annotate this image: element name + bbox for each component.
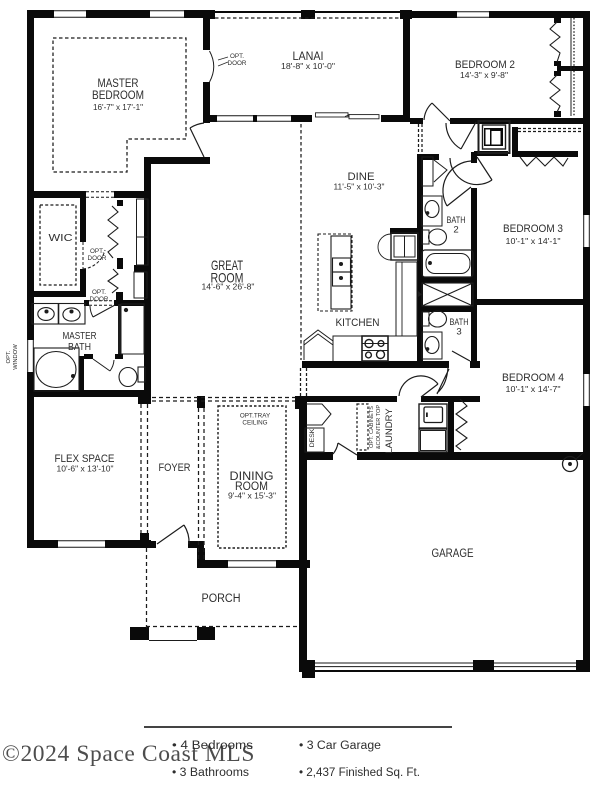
svg-text:BEDROOM 3: BEDROOM 3 (503, 223, 563, 235)
svg-text:DOOR: DOOR (228, 60, 247, 67)
svg-text:OPT.TRAY: OPT.TRAY (240, 413, 271, 420)
svg-text:OPT.: OPT. (90, 248, 104, 255)
svg-text:3: 3 (456, 327, 461, 338)
svg-text:OPT.: OPT. (6, 350, 12, 363)
svg-text:©2024 Space Coast MLS: ©2024 Space Coast MLS (2, 741, 255, 767)
svg-text:10'-6" x 13'-10": 10'-6" x 13'-10" (57, 464, 114, 474)
svg-text:OPT.: OPT. (92, 289, 106, 296)
svg-text:KITCHEN: KITCHEN (336, 317, 380, 329)
svg-text:10'-1" x 14'-7": 10'-1" x 14'-7" (506, 384, 561, 394)
svg-text:14'-6" x 26'-8": 14'-6" x 26'-8" (202, 282, 255, 292)
svg-text:PORCH: PORCH (202, 591, 241, 605)
svg-text:• 3 Bathrooms: • 3 Bathrooms (172, 767, 249, 779)
svg-text:WIC: WIC (49, 233, 74, 244)
svg-text:OPT. CABINETS: OPT. CABINETS (369, 406, 375, 448)
svg-text:LAUNDRY: LAUNDRY (384, 408, 395, 454)
svg-text:BEDROOM: BEDROOM (92, 88, 144, 102)
svg-text:BEDROOM 4: BEDROOM 4 (502, 372, 564, 384)
svg-text:• 3 Car Garage: • 3 Car Garage (299, 740, 381, 752)
svg-text:DESK: DESK (309, 428, 316, 447)
svg-text:11'-5" x 10'-3": 11'-5" x 10'-3" (334, 182, 385, 192)
svg-text:14'-3" x 9'-8": 14'-3" x 9'-8" (460, 70, 508, 80)
svg-text:DOOR: DOOR (90, 296, 109, 303)
svg-text:&COUNTER TOP: &COUNTER TOP (376, 405, 382, 450)
svg-text:MASTER: MASTER (63, 331, 97, 342)
svg-text:CEILING: CEILING (242, 420, 267, 427)
svg-text:GARAGE: GARAGE (432, 546, 474, 560)
svg-text:• 2,437 Finished Sq. Ft.: • 2,437 Finished Sq. Ft. (299, 767, 420, 779)
svg-text:OPT.: OPT. (230, 53, 244, 60)
svg-text:16'-7" x 17'-1": 16'-7" x 17'-1" (93, 102, 143, 112)
svg-text:2: 2 (453, 225, 458, 236)
svg-text:18'-8" x 10'-0": 18'-8" x 10'-0" (281, 61, 335, 71)
svg-text:FOYER: FOYER (159, 462, 191, 474)
svg-text:10'-1" x 14'-1": 10'-1" x 14'-1" (506, 236, 561, 246)
svg-text:WINDOW: WINDOW (13, 344, 19, 370)
svg-text:BATH: BATH (68, 342, 91, 353)
svg-text:9'-4" x 15'-3": 9'-4" x 15'-3" (228, 491, 276, 501)
svg-text:DOOR: DOOR (88, 255, 107, 262)
